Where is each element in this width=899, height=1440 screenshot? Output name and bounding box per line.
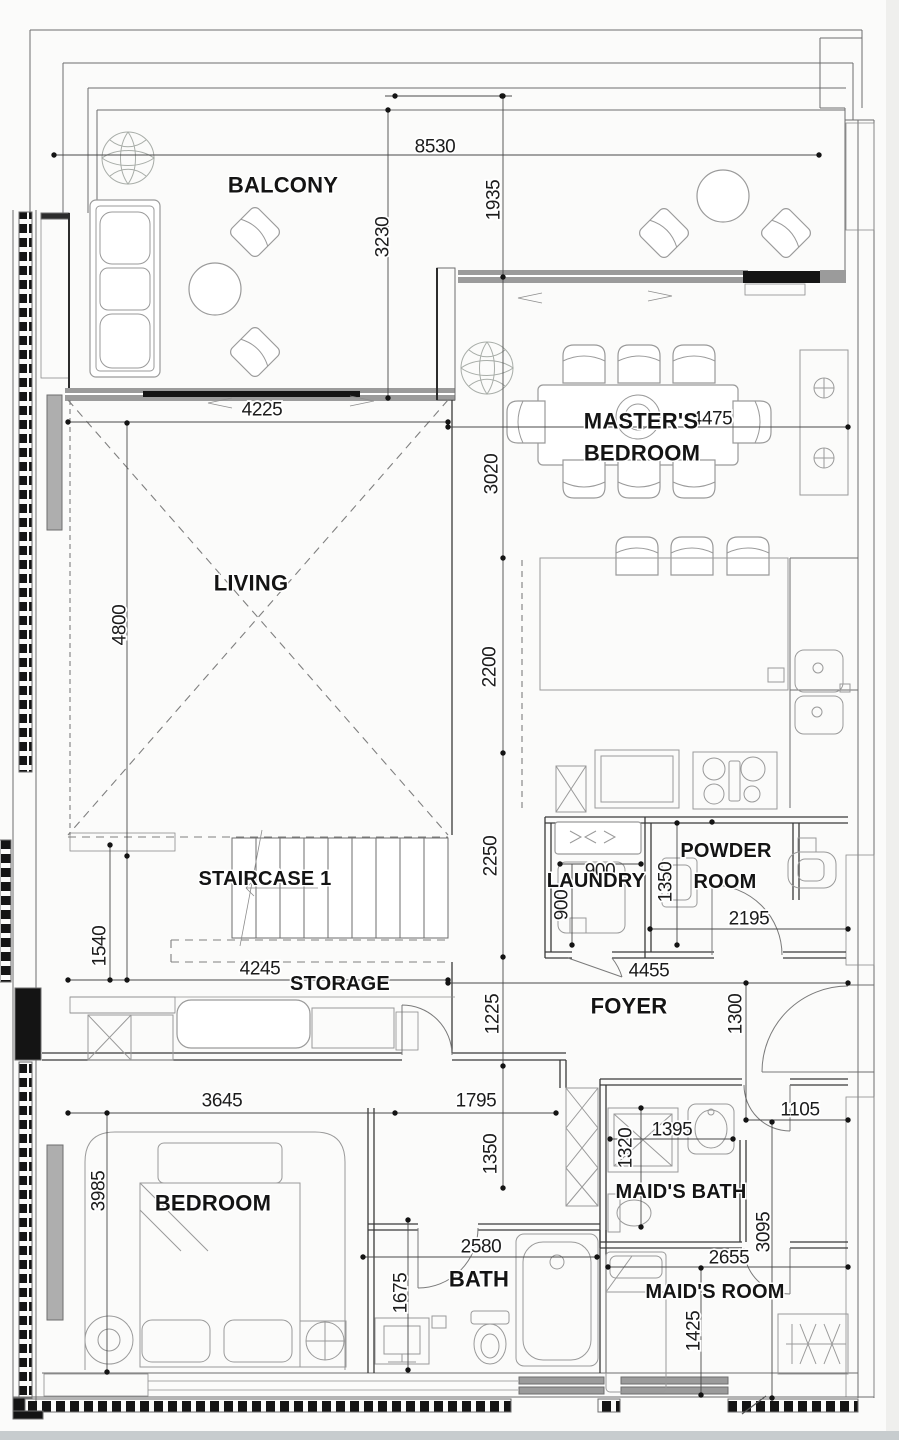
room-label-powder-line2: ROOM	[693, 871, 756, 893]
bathtub-icon	[516, 1234, 598, 1366]
floor-plan-page: 8530 4225 4475 4245 4455 3645 1795 1105 …	[0, 0, 899, 1440]
dim-1935: 1935	[484, 180, 505, 221]
dim-900-laundry-v: 900	[552, 890, 573, 921]
balcony-left-furniture	[90, 132, 282, 379]
cooktop-icon	[693, 752, 777, 809]
dim-2580: 2580	[461, 1237, 502, 1258]
bedroom-furniture	[85, 1132, 346, 1370]
dim-4225: 4225	[242, 400, 283, 421]
dim-8530: 8530	[415, 137, 456, 158]
doors	[402, 885, 848, 1294]
balcony-chair-icon	[637, 206, 691, 260]
balcony-chair-icon	[228, 325, 282, 379]
double-sink-icon	[795, 650, 850, 734]
dim-1225: 1225	[483, 994, 504, 1035]
room-label-bath: BATH	[449, 1267, 509, 1292]
dim-4245: 4245	[240, 959, 281, 980]
toilet-icon	[471, 1311, 509, 1364]
dim-3020: 3020	[482, 454, 503, 495]
dim-2250: 2250	[481, 836, 502, 877]
wardrobe-icon	[778, 1314, 848, 1374]
dim-3645: 3645	[202, 1091, 243, 1112]
dim-3095: 3095	[754, 1212, 775, 1253]
room-label-masters-line1: MASTER'S	[584, 409, 698, 434]
toilet-icon	[788, 838, 836, 888]
room-label-maids-room: MAID'S ROOM	[645, 1281, 784, 1303]
room-label-balcony: BALCONY	[228, 173, 338, 198]
room-label-foyer: FOYER	[591, 994, 668, 1019]
laundry-door	[568, 958, 622, 977]
dim-1300: 1300	[726, 994, 747, 1035]
room-label-storage: STORAGE	[290, 973, 390, 995]
room-label-laundry: LAUNDRY	[547, 870, 646, 892]
dim-1320: 1320	[616, 1128, 637, 1169]
maids-room-furniture	[606, 1252, 848, 1392]
dim-1350-corridor: 1350	[481, 1134, 502, 1175]
dim-1425: 1425	[684, 1311, 705, 1352]
dim-1675: 1675	[391, 1273, 412, 1314]
dishwasher-icon	[556, 766, 586, 812]
dim-3985: 3985	[89, 1171, 110, 1212]
dim-4455: 4455	[629, 961, 670, 982]
bedroom-door	[402, 1005, 452, 1055]
room-label-powder-line1: POWDER	[680, 840, 772, 862]
room-label-staircase1: STAIRCASE 1	[199, 868, 332, 890]
tree-icon	[102, 132, 154, 184]
dim-4800: 4800	[110, 605, 131, 646]
balcony-chair-icon	[228, 205, 282, 259]
dim-2655: 2655	[709, 1248, 750, 1269]
dim-2200: 2200	[480, 647, 501, 688]
vanity-icon	[375, 1318, 429, 1364]
room-label-living: LIVING	[214, 571, 289, 596]
sink-icon	[688, 1104, 734, 1154]
dim-1350-laundry: 1350	[656, 862, 677, 903]
dim-1105: 1105	[780, 1100, 819, 1121]
storage-cabinets	[88, 1000, 418, 1060]
dim-3230: 3230	[373, 217, 394, 258]
balcony-right-furniture	[637, 170, 813, 260]
balcony-chair-icon	[759, 206, 813, 260]
room-label-maids-bath: MAID'S BATH	[615, 1181, 746, 1203]
floor-plan-canvas: 8530 4225 4475 4245 4455 3645 1795 1105 …	[0, 0, 899, 1440]
dim-1395: 1395	[652, 1120, 693, 1141]
dimension-labels: 8530 4225 4475 4245 4455 3645 1795 1105 …	[89, 137, 820, 1352]
dim-1795: 1795	[456, 1091, 497, 1112]
counter-burners-icon	[800, 350, 848, 495]
dim-2195: 2195	[729, 909, 770, 930]
dim-1540: 1540	[90, 926, 111, 967]
room-label-masters-line2: BEDROOM	[584, 441, 700, 466]
corridor-closet	[566, 1088, 598, 1206]
room-label-bedroom: BEDROOM	[155, 1191, 271, 1216]
tree-icon	[461, 342, 513, 394]
entry-door	[762, 986, 848, 1072]
